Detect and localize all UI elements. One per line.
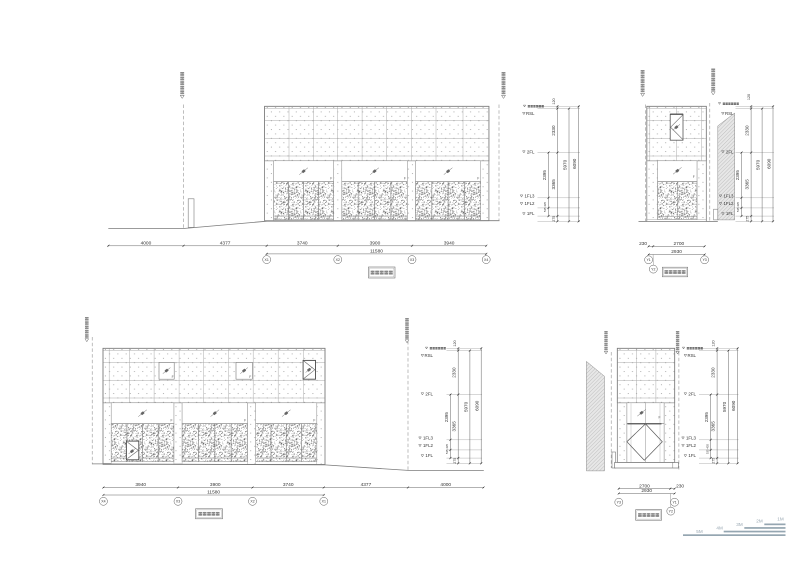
svg-text:1FL2: 1FL2	[524, 201, 535, 206]
svg-text:535 435: 535 435	[705, 444, 709, 455]
svg-text:3365: 3365	[551, 179, 556, 190]
svg-text:6090: 6090	[766, 158, 771, 169]
svg-text:F: F	[244, 418, 246, 422]
svg-text:5970: 5970	[756, 159, 761, 170]
svg-text:RSL: RSL	[725, 111, 734, 116]
svg-text:1FL2: 1FL2	[723, 201, 734, 206]
svg-text:11580: 11580	[370, 249, 383, 255]
svg-text:230: 230	[639, 241, 647, 247]
svg-text:F: F	[404, 176, 406, 180]
svg-text:275: 275	[746, 216, 750, 222]
svg-text:5970: 5970	[463, 401, 468, 412]
svg-text:3740: 3740	[283, 482, 294, 488]
svg-text:120: 120	[453, 340, 457, 346]
svg-text:3940: 3940	[135, 482, 146, 488]
svg-text:120: 120	[747, 94, 751, 100]
svg-text:1M: 1M	[777, 516, 784, 521]
svg-text:2M: 2M	[756, 518, 763, 523]
svg-text:Y1: Y1	[672, 500, 676, 504]
svg-text:RSL: RSL	[526, 111, 535, 116]
svg-text:F: F	[171, 418, 173, 422]
svg-text:Y2: Y2	[651, 267, 655, 271]
svg-text:Y2: Y2	[669, 509, 673, 513]
svg-text:275: 275	[552, 216, 556, 222]
svg-text:1FL2: 1FL2	[423, 443, 434, 448]
svg-text:3365: 3365	[745, 179, 750, 190]
svg-text:2930: 2930	[671, 249, 682, 255]
svg-text:RSL: RSL	[687, 353, 696, 358]
svg-text:2FL: 2FL	[688, 391, 696, 396]
svg-text:RSL: RSL	[424, 353, 433, 358]
svg-text:F: F	[477, 176, 479, 180]
svg-text:X4: X4	[484, 258, 488, 262]
svg-text:535 435: 535 435	[445, 444, 449, 455]
svg-text:F: F	[659, 416, 661, 420]
svg-text:2395: 2395	[735, 170, 740, 181]
svg-text:F: F	[249, 375, 251, 379]
svg-text:1FL2: 1FL2	[686, 443, 697, 448]
svg-text:1FL3: 1FL3	[423, 435, 434, 440]
svg-text:3M: 3M	[736, 522, 743, 527]
svg-text:F: F	[313, 418, 315, 422]
svg-text:2330: 2330	[745, 125, 750, 136]
svg-text:1FL: 1FL	[688, 453, 696, 458]
svg-text:X1: X1	[322, 499, 326, 503]
svg-text:1FL3: 1FL3	[524, 193, 535, 198]
svg-text:275: 275	[453, 458, 457, 464]
svg-text:X1: X1	[265, 258, 269, 262]
svg-text:Y1: Y1	[646, 258, 650, 262]
svg-text:2700: 2700	[674, 241, 685, 247]
svg-text:Y3: Y3	[702, 258, 706, 262]
svg-text:2395: 2395	[444, 412, 449, 423]
svg-text:4000: 4000	[141, 241, 152, 247]
svg-text:535 435: 535 435	[736, 202, 740, 213]
svg-text:275: 275	[712, 458, 716, 464]
svg-text:11580: 11580	[207, 490, 220, 496]
svg-text:Y3: Y3	[617, 500, 621, 504]
svg-text:6090: 6090	[475, 400, 480, 411]
svg-text:X3: X3	[176, 499, 180, 503]
svg-text:X2: X2	[336, 258, 340, 262]
svg-text:F: F	[693, 175, 695, 179]
svg-text:6090: 6090	[572, 158, 577, 169]
svg-text:F: F	[172, 375, 174, 379]
svg-text:2330: 2330	[452, 367, 457, 378]
svg-text:3740: 3740	[297, 241, 308, 247]
svg-text:4000: 4000	[440, 482, 451, 488]
svg-text:X4: X4	[101, 499, 105, 503]
svg-text:F: F	[330, 176, 332, 180]
svg-text:X2: X2	[250, 499, 254, 503]
svg-text:1FL3: 1FL3	[723, 193, 734, 198]
svg-text:5970: 5970	[722, 401, 727, 412]
svg-text:3365: 3365	[452, 421, 457, 432]
svg-text:2FL: 2FL	[726, 149, 734, 154]
svg-text:2FL: 2FL	[527, 149, 535, 154]
svg-text:4M: 4M	[716, 526, 723, 531]
svg-text:535 435: 535 435	[543, 202, 547, 213]
svg-text:2330: 2330	[551, 125, 556, 136]
svg-text:1FL: 1FL	[726, 211, 734, 216]
svg-text:120: 120	[552, 98, 556, 104]
svg-text:5970: 5970	[562, 159, 567, 170]
svg-text:3900: 3900	[210, 482, 221, 488]
svg-text:3900: 3900	[370, 241, 381, 247]
svg-text:3940: 3940	[444, 241, 455, 247]
svg-text:2930: 2930	[641, 488, 652, 494]
svg-text:1FL: 1FL	[425, 453, 433, 458]
svg-text:2395: 2395	[704, 412, 709, 423]
svg-text:6090: 6090	[731, 400, 736, 411]
svg-text:2330: 2330	[711, 367, 716, 378]
svg-text:4377: 4377	[361, 482, 372, 488]
svg-text:3365: 3365	[711, 421, 716, 432]
svg-text:230: 230	[676, 483, 684, 489]
svg-text:1FL3: 1FL3	[686, 435, 697, 440]
svg-text:5M: 5M	[696, 529, 703, 534]
svg-text:1FL: 1FL	[527, 211, 535, 216]
svg-text:2395: 2395	[542, 170, 547, 181]
svg-text:2FL: 2FL	[425, 391, 433, 396]
svg-text:120: 120	[712, 340, 716, 346]
svg-text:X3: X3	[410, 258, 414, 262]
svg-text:4377: 4377	[220, 241, 231, 247]
